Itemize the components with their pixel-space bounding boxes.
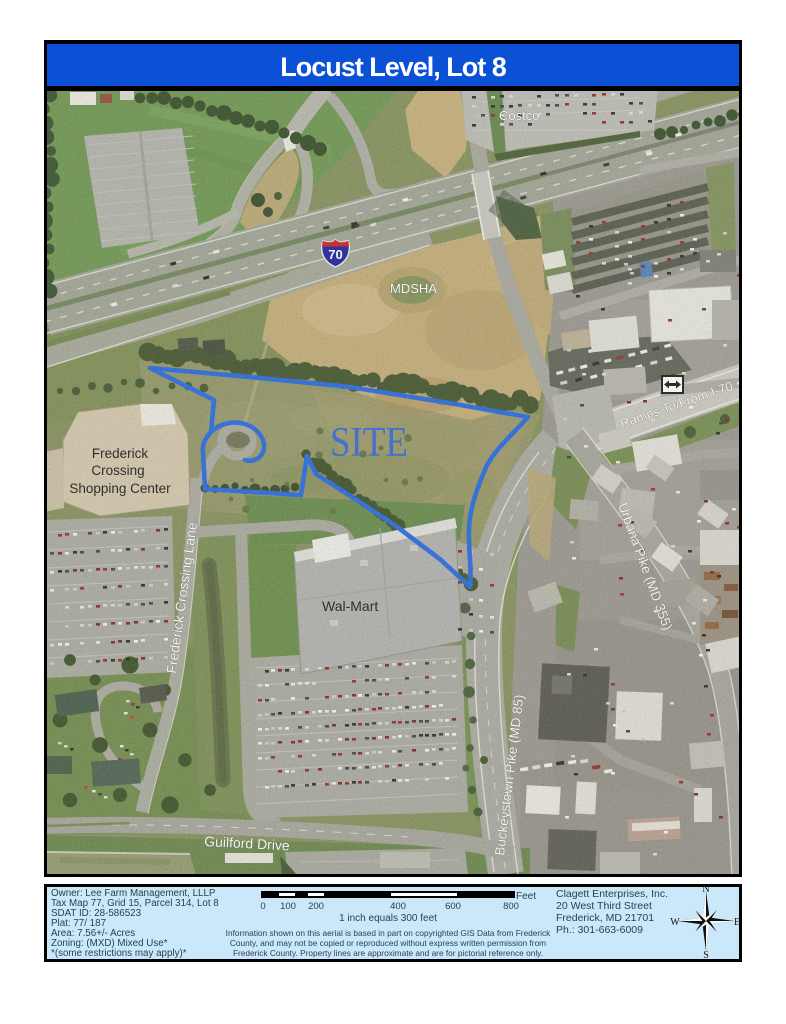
- svg-text:Locust Level, Lot 8: Locust Level, Lot 8: [280, 52, 507, 82]
- svg-text:Information shown on this aeri: Information shown on this aerial is base…: [226, 928, 552, 938]
- svg-text:200: 200: [308, 901, 324, 912]
- svg-text:E: E: [734, 917, 740, 928]
- svg-text:W: W: [670, 917, 680, 928]
- svg-text:800: 800: [503, 901, 519, 912]
- svg-text:Clagett Enterprises, Inc.: Clagett Enterprises, Inc.: [556, 888, 668, 900]
- svg-text:1 inch equals 300 feet: 1 inch equals 300 feet: [339, 913, 437, 924]
- svg-text:Frederick County. Property li: Frederick County. Property lines are app…: [233, 948, 543, 958]
- svg-text:100: 100: [280, 901, 296, 912]
- svg-text:600: 600: [445, 901, 461, 912]
- svg-text:*(some restrictions may apply): *(some restrictions may apply)*: [51, 948, 187, 959]
- svg-text:Frederick, MD 21701: Frederick, MD 21701: [556, 912, 654, 924]
- svg-text:N: N: [702, 884, 709, 895]
- svg-text:20 West Third Street: 20 West Third Street: [556, 900, 652, 912]
- svg-text:0: 0: [260, 901, 265, 912]
- svg-text:Feet: Feet: [516, 891, 536, 902]
- svg-text:County, and may not be copied: County, and may not be copied or reprodu…: [230, 938, 546, 948]
- svg-text:S: S: [703, 950, 709, 961]
- svg-text:Ph.: 301-663-6009: Ph.: 301-663-6009: [556, 924, 643, 936]
- svg-text:400: 400: [390, 901, 406, 912]
